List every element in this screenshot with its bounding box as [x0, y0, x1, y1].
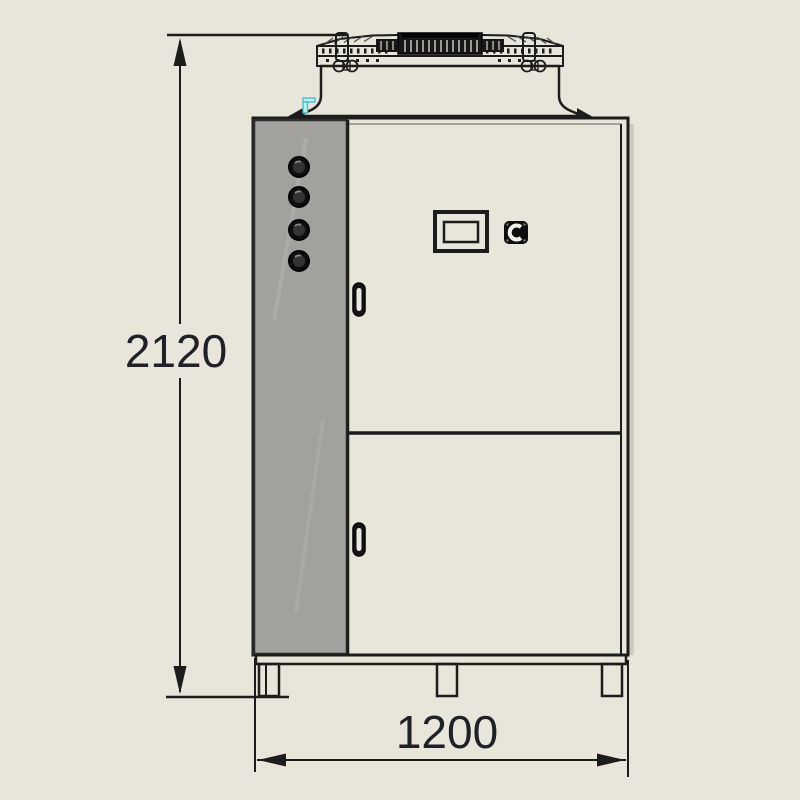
door-handle-upper [353, 283, 365, 316]
foot-left [259, 664, 279, 696]
machine-drawing [0, 0, 800, 800]
height-dimension-label: 2120 [125, 324, 227, 378]
side-panel [254, 120, 347, 654]
panel-knob-1 [289, 157, 309, 177]
cowling-body [297, 66, 583, 116]
arrowhead-down [174, 666, 187, 694]
power-switch [504, 221, 528, 244]
door-handle-lower [353, 523, 365, 556]
cabinet [253, 118, 634, 696]
display-screen [435, 212, 487, 251]
arrowhead-up [174, 38, 187, 66]
drawing-canvas: 2120 1200 [0, 0, 800, 800]
foot-center [437, 664, 457, 696]
panel-knob-3 [289, 220, 309, 240]
cabinet-shadow [629, 124, 634, 655]
arrowhead-right [597, 754, 625, 767]
panel-knob-4 [289, 251, 309, 271]
base-frame [256, 655, 626, 696]
width-dimension-label: 1200 [396, 705, 498, 759]
panel-knob-2 [289, 187, 309, 207]
arrowhead-left [258, 754, 286, 767]
foot-right [602, 664, 622, 696]
fan-cowling [287, 33, 593, 117]
fan-grille-top-bar [402, 33, 478, 38]
